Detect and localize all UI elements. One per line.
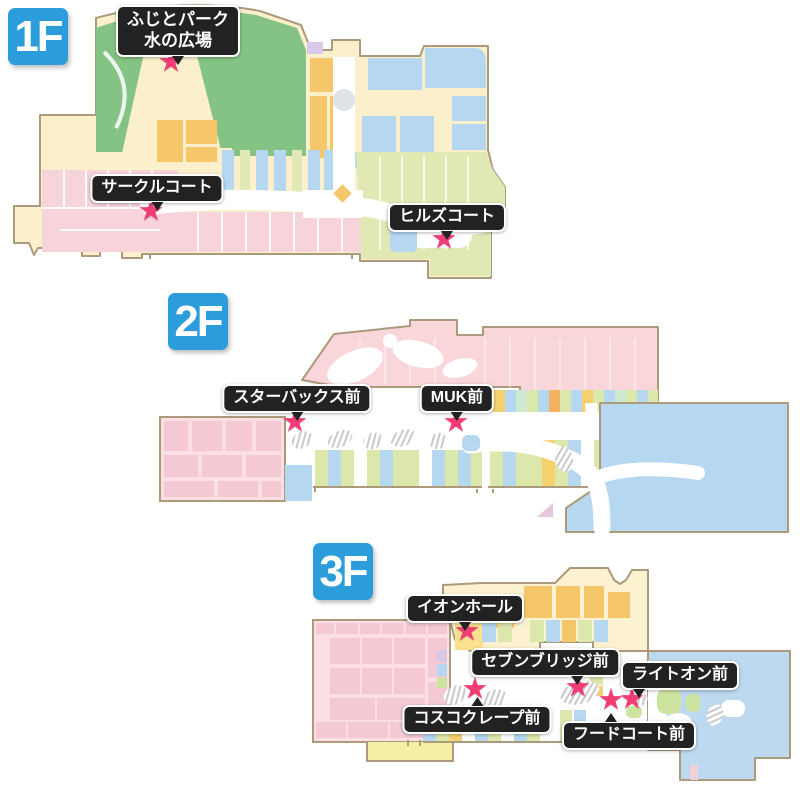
shop-block-blue-2f	[285, 465, 312, 501]
map-label-muk-mae: MUK前	[420, 384, 494, 413]
map-label-aeon-hall: イオンホール	[406, 594, 524, 623]
map-label-starbucks-mae: スターバックス前	[222, 384, 371, 413]
entrance-tab-yellow-3f	[367, 742, 453, 761]
map-label-seven-bridge-mae: セブンブリッジ前	[470, 648, 620, 677]
floor-badge-1f: 1F	[8, 8, 68, 65]
map-label-circle-court: サークルコート	[90, 174, 223, 203]
map-label-right-on-mae: ライトオン前	[621, 661, 739, 690]
floor-badge-2f: 2F	[168, 293, 228, 350]
floor-map-2f	[150, 296, 800, 540]
shops-cluster-pink-left-2f	[160, 417, 285, 501]
floor-badge-3f: 3F	[313, 543, 373, 600]
location-star-icon: ★	[598, 686, 625, 716]
map-label-fujito-park-mizu-no-hiroba: ふじとパーク 水の広場	[116, 5, 240, 57]
round-plaza-1f	[333, 89, 355, 111]
small-shop-column-3f	[437, 650, 447, 688]
stripe-shops-band-a-2f	[315, 450, 482, 487]
shop-block-lavender	[307, 42, 323, 54]
map-label-cosco-crepe-mae: コスコクレープ前	[402, 705, 551, 734]
map-label-hills-court: ヒルズコート	[388, 203, 506, 232]
map-label-food-court-mae: フードコート前	[562, 721, 696, 750]
mall-floor-guide: 1F 2F 3F ★ ★ ★ ★ ★ ★ ★ ★ ★ ★ ふじとパーク 水の広場…	[0, 0, 800, 800]
